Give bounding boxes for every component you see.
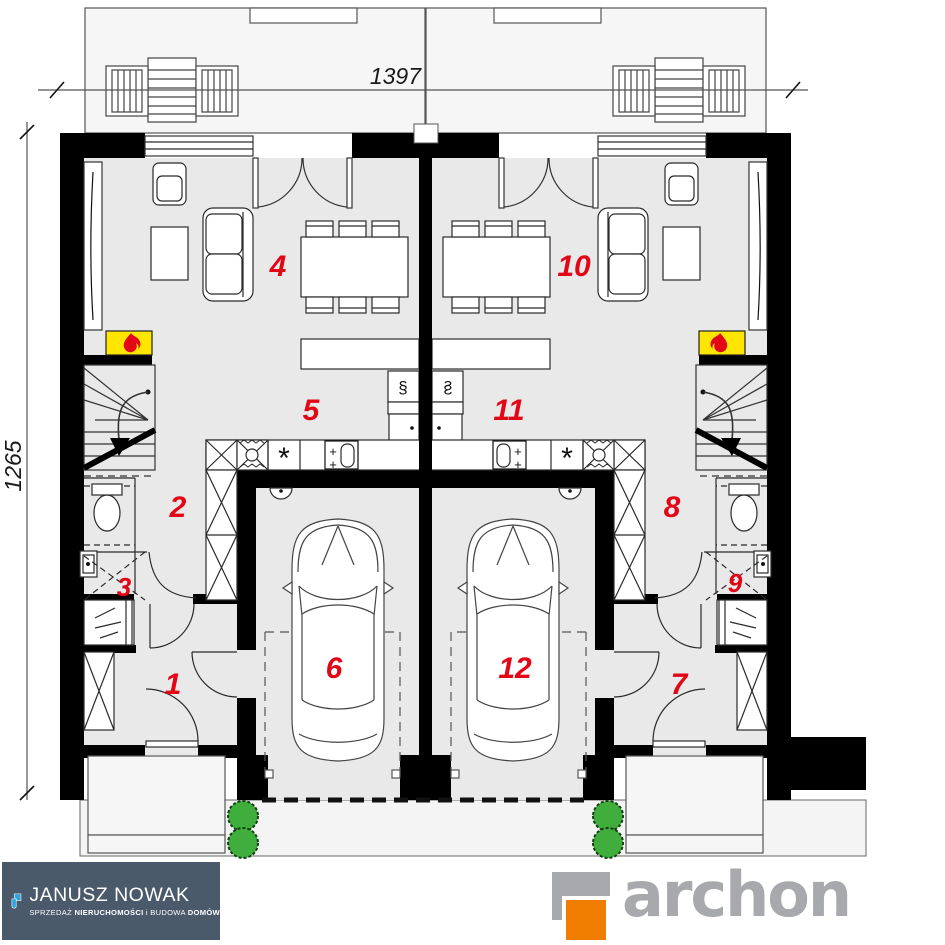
dimension-left: 1265 [0,122,34,800]
terrace-notch [250,8,357,23]
tagline-sprzedaz: SPRZEDAŻ [29,908,74,917]
burner-icon: * [278,442,290,475]
dimension-height-label: 1265 [0,440,26,491]
janusz-nowak-logo: JANUSZ NOWAK SPRZEDAŻ NIERUCHOMOŚCI i BU… [2,862,220,940]
toilet-icon [92,484,122,531]
left-unit: § * + + [60,8,426,858]
side-wall-right [767,737,866,790]
floor-plan-drawing: § * + + [0,0,945,945]
archon-logo: archon [546,864,945,944]
window-living-left-wall [84,162,102,330]
kitchen-island [301,339,419,369]
shower-icon [84,600,134,645]
fridge-icon [237,440,268,470]
room-number-5: 5 [303,394,321,427]
armchair-icon [153,163,186,205]
room-number-3: 3 [117,572,132,602]
tagline-domow: DOMÓW [188,908,220,917]
room-number-1: 1 [165,668,182,701]
wardrobe-icon [84,652,114,730]
car-icon [283,519,393,761]
room-number-8: 8 [664,491,681,524]
fireplace-icon [106,331,152,355]
tall-cabinet-column [206,470,237,600]
janusz-nowak-mark-icon [10,868,23,934]
archon-mark-icon [548,870,614,940]
party-wall [419,143,432,755]
janusz-nowak-name: JANUSZ NOWAK [29,885,220,905]
coffee-table-icon [151,227,188,280]
entrance-porch [88,756,225,853]
kitchen-hob: § [388,371,419,414]
janusz-nowak-tagline: SPRZEDAŻ NIERUCHOMOŚCI i BUDOWA DOMÓW [29,908,220,917]
chimney [414,124,438,143]
room-number-2: 2 [169,491,187,524]
floor-plan-page: § * + + [0,0,945,945]
room-number-7: 7 [671,668,689,701]
hob-spiral-icon: § [398,378,407,397]
room-number-9: 9 [728,568,743,598]
faucet-cross: + [329,457,337,472]
room-number-11: 11 [493,394,524,427]
dining-table-icon [301,221,408,313]
kitchen-sink-wall [389,414,419,442]
room-number-10: 10 [557,250,591,283]
dimension-width-label: 1397 [370,63,422,89]
room-number-4: 4 [269,250,287,283]
stairs-icon [84,365,155,476]
garage-threshold-floor [256,755,400,800]
room-number-12: 12 [498,652,532,685]
kitchen-counter-row: * + + [206,440,420,475]
tagline-i-budowa: i BUDOWA [144,908,188,917]
archon-wordmark: archon [622,858,850,931]
tagline-nieruchomosci: NIERUCHOMOŚCI [74,908,143,917]
window-top-wall [145,136,253,156]
right-unit [425,8,791,858]
sink-unit-icon: + + [325,441,358,472]
sofa-icon [203,208,253,301]
room-number-6: 6 [326,652,343,685]
